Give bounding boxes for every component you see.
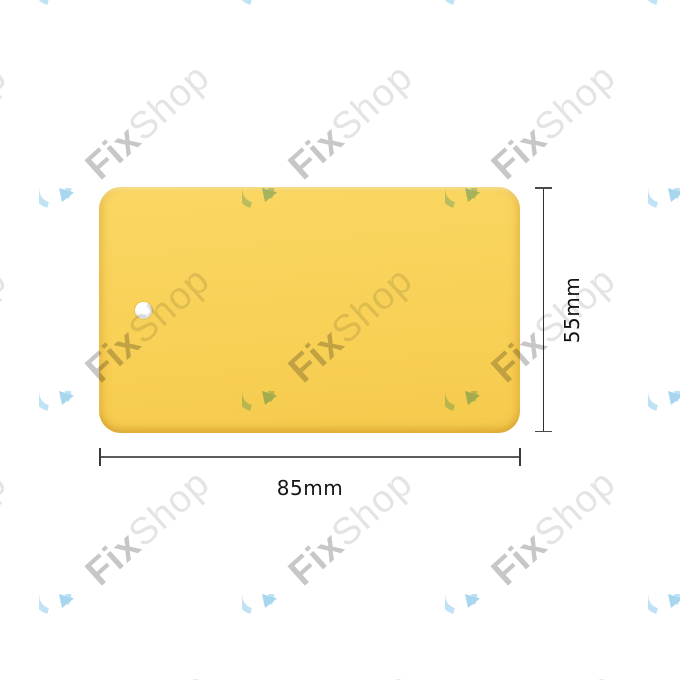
watermark-brand-text: FixShop xyxy=(485,666,622,680)
watermark-brand-text: FixShop xyxy=(485,463,622,592)
watermark-logo xyxy=(39,0,85,35)
watermark-brand-text: FixShop xyxy=(0,260,14,389)
height-dimension-cap-top xyxy=(535,187,552,189)
watermark-brand-text: FixShop xyxy=(282,57,419,186)
watermark-logo xyxy=(242,0,288,35)
watermark-logo xyxy=(445,0,491,35)
watermark-brand-text: FixShop xyxy=(79,463,216,592)
watermark-brand-text: FixShop xyxy=(282,666,419,680)
height-dimension-line xyxy=(543,188,545,431)
watermark-logo xyxy=(648,391,680,441)
watermark-logo xyxy=(39,594,85,644)
watermark-logo xyxy=(648,594,680,644)
watermark-brand-text: FixShop xyxy=(0,463,14,592)
watermark-logo xyxy=(648,0,680,35)
watermark-brand-text: FixShop xyxy=(485,57,622,186)
product-dimension-image: 55mm 85mm FixShopFixShopFixShopFixShopFi… xyxy=(0,0,680,680)
width-dimension-label: 85mm xyxy=(277,476,343,500)
watermark-logo xyxy=(445,594,491,644)
circular-arrow-icon xyxy=(445,594,491,640)
watermark-logo xyxy=(242,594,288,644)
watermark-brand-text: FixShop xyxy=(0,666,14,680)
width-dimension-tick-left xyxy=(99,448,101,466)
circular-arrow-icon xyxy=(648,391,680,437)
circular-arrow-icon xyxy=(445,0,491,31)
watermark-brand-text: FixShop xyxy=(79,666,216,680)
circular-arrow-icon xyxy=(39,391,85,437)
watermark-brand-text: FixShop xyxy=(79,57,216,186)
height-dimension-label: 55mm xyxy=(560,277,584,343)
circular-arrow-icon xyxy=(648,188,680,234)
circular-arrow-icon xyxy=(39,0,85,31)
width-dimension-tick-right xyxy=(519,448,521,466)
circular-arrow-icon xyxy=(242,0,288,31)
width-dimension-line xyxy=(100,456,520,458)
yellow-card xyxy=(99,187,520,433)
watermark-logo xyxy=(39,391,85,441)
circular-arrow-icon xyxy=(242,594,288,640)
watermark-brand-text: FixShop xyxy=(0,57,14,186)
circular-arrow-icon xyxy=(648,0,680,31)
card-hang-hole xyxy=(135,302,152,319)
circular-arrow-icon xyxy=(39,594,85,640)
circular-arrow-icon xyxy=(39,188,85,234)
watermark-logo xyxy=(648,188,680,238)
watermark-logo xyxy=(39,188,85,238)
height-dimension-cap-bottom xyxy=(535,431,552,433)
circular-arrow-icon xyxy=(648,594,680,640)
